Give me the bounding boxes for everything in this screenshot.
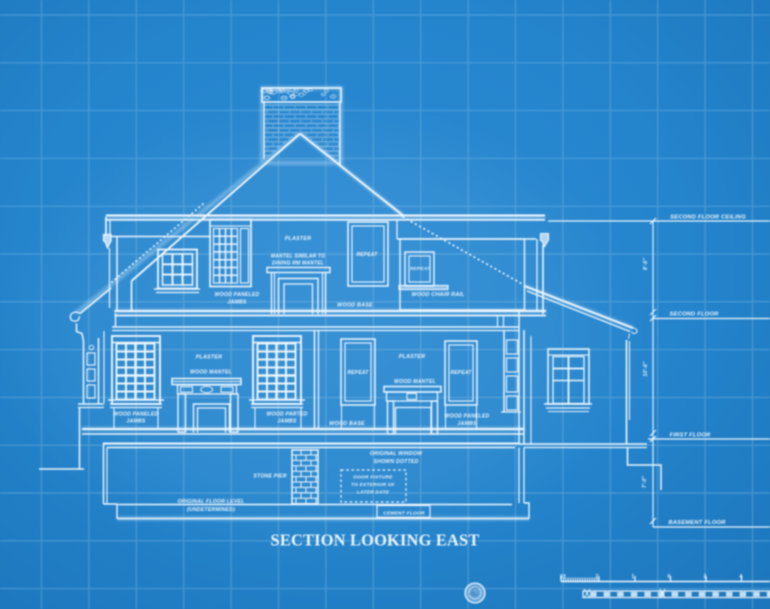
svg-text:STONE PIER: STONE PIER — [253, 474, 286, 480]
svg-text:REPEAT: REPEAT — [356, 252, 378, 258]
svg-text:REPEAT: REPEAT — [347, 370, 369, 376]
svg-text:10'-6": 10'-6" — [643, 361, 649, 377]
svg-text:WOOD BASE: WOOD BASE — [329, 421, 365, 427]
svg-text:WOOD PANELED: WOOD PANELED — [215, 292, 260, 298]
svg-text:SHOWN DOTTED: SHOWN DOTTED — [373, 459, 418, 465]
svg-text:WOOD PANELED: WOOD PANELED — [445, 414, 490, 420]
svg-text:PLASTER: PLASTER — [399, 354, 426, 360]
svg-text:WOOD PARTED: WOOD PARTED — [266, 412, 307, 418]
svg-text:BASEMENT FLOOR: BASEMENT FLOOR — [668, 520, 726, 526]
svg-text:WOOD MANTEL: WOOD MANTEL — [190, 370, 232, 376]
svg-text:SECOND FLOOR CEILING: SECOND FLOOR CEILING — [670, 215, 746, 221]
svg-text:JAMBS: JAMBS — [126, 419, 145, 425]
svg-text:FIRST FLOOR: FIRST FLOOR — [670, 433, 711, 439]
svg-text:REPEAT: REPEAT — [410, 266, 431, 272]
svg-text:7'-0": 7'-0" — [642, 476, 648, 489]
svg-text:8'-6": 8'-6" — [643, 258, 649, 271]
svg-text:PLASTER: PLASTER — [196, 355, 223, 361]
svg-text:SECTION LOOKING EAST: SECTION LOOKING EAST — [271, 531, 480, 550]
svg-text:WOOD PANELED: WOOD PANELED — [114, 412, 159, 418]
svg-text:SECOND FLOOR: SECOND FLOOR — [669, 312, 719, 318]
svg-text:PLASTER: PLASTER — [285, 236, 312, 242]
svg-text:WOOD BASE: WOOD BASE — [337, 303, 373, 309]
svg-text:JAMBS: JAMBS — [457, 421, 476, 427]
svg-text:ORIGINAL FLOOR LEVEL: ORIGINAL FLOOR LEVEL — [177, 499, 244, 505]
svg-text:JAMBS: JAMBS — [227, 300, 246, 306]
svg-text:DINING RM MANTEL: DINING RM MANTEL — [272, 261, 324, 267]
svg-text:LATER DATE: LATER DATE — [357, 490, 390, 496]
svg-text:ORIGINAL WINDOW: ORIGINAL WINDOW — [370, 451, 423, 457]
svg-text:WOOD MANTEL: WOOD MANTEL — [394, 379, 436, 385]
svg-text:WOOD CHAIR RAIL: WOOD CHAIR RAIL — [411, 292, 464, 298]
svg-text:TO EXTERIOR OF: TO EXTERIOR OF — [351, 482, 396, 488]
svg-text:JAMBS: JAMBS — [277, 419, 296, 425]
svg-text:REPEAT: REPEAT — [450, 370, 472, 376]
svg-text:MANTEL SIMILAR TO: MANTEL SIMILAR TO — [271, 254, 325, 260]
svg-text:(UNDETERMINED): (UNDETERMINED) — [187, 507, 235, 513]
svg-text:DOOR FIXTURE: DOOR FIXTURE — [353, 475, 393, 481]
svg-text:CEMENT FLOOR: CEMENT FLOOR — [383, 511, 425, 517]
